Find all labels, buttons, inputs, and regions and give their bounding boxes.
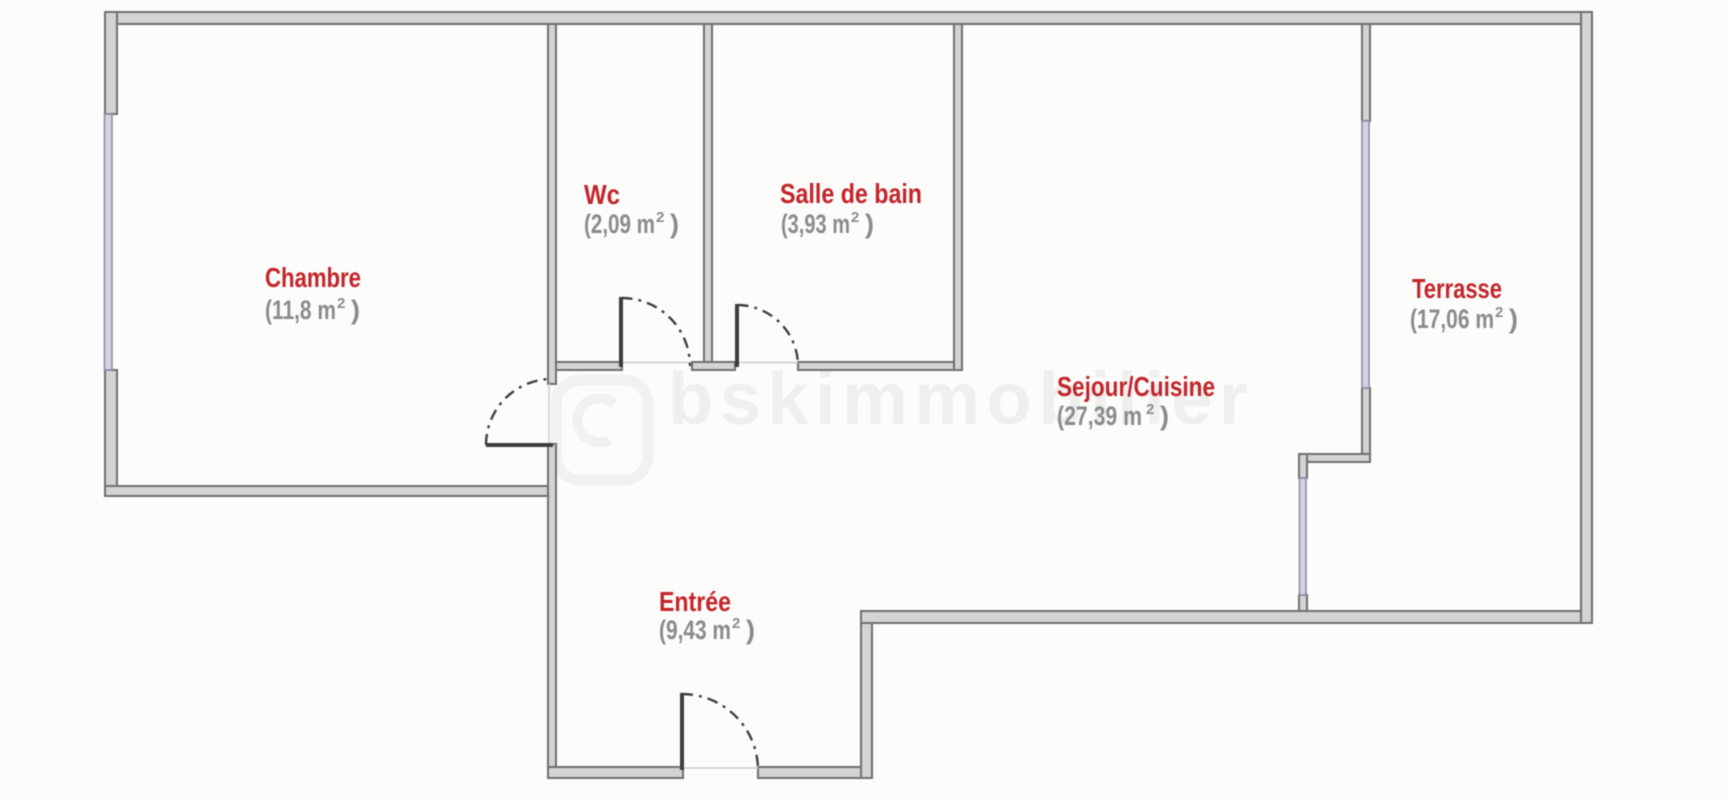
- svg-text:2: 2: [337, 295, 345, 312]
- svg-text:(17,06 m: (17,06 m: [1410, 304, 1494, 334]
- svg-text:Terrasse: Terrasse: [1412, 273, 1502, 304]
- svg-text:): ): [1509, 304, 1518, 334]
- svg-text:2: 2: [851, 209, 859, 226]
- svg-text:2: 2: [732, 615, 740, 632]
- svg-text:): ): [1160, 401, 1169, 431]
- svg-text:2: 2: [656, 209, 664, 226]
- svg-text:Chambre: Chambre: [265, 262, 361, 293]
- svg-text:(27,39 m: (27,39 m: [1057, 401, 1142, 431]
- svg-text:): ): [351, 295, 360, 325]
- svg-text:2: 2: [1495, 304, 1503, 321]
- svg-text:Wc: Wc: [584, 179, 620, 210]
- svg-text:(3,93 m: (3,93 m: [781, 209, 850, 239]
- svg-text:2: 2: [1146, 401, 1154, 418]
- svg-text:Entrée: Entrée: [659, 586, 731, 617]
- svg-text:Sejour/Cuisine: Sejour/Cuisine: [1057, 371, 1215, 402]
- svg-text:Salle de bain: Salle de bain: [780, 178, 922, 209]
- svg-text:(2,09 m: (2,09 m: [584, 209, 655, 239]
- svg-text:(9,43 m: (9,43 m: [659, 615, 731, 645]
- svg-text:): ): [746, 615, 755, 645]
- svg-text:): ): [865, 209, 874, 239]
- svg-text:): ): [670, 209, 679, 239]
- svg-text:(11,8 m: (11,8 m: [265, 295, 336, 325]
